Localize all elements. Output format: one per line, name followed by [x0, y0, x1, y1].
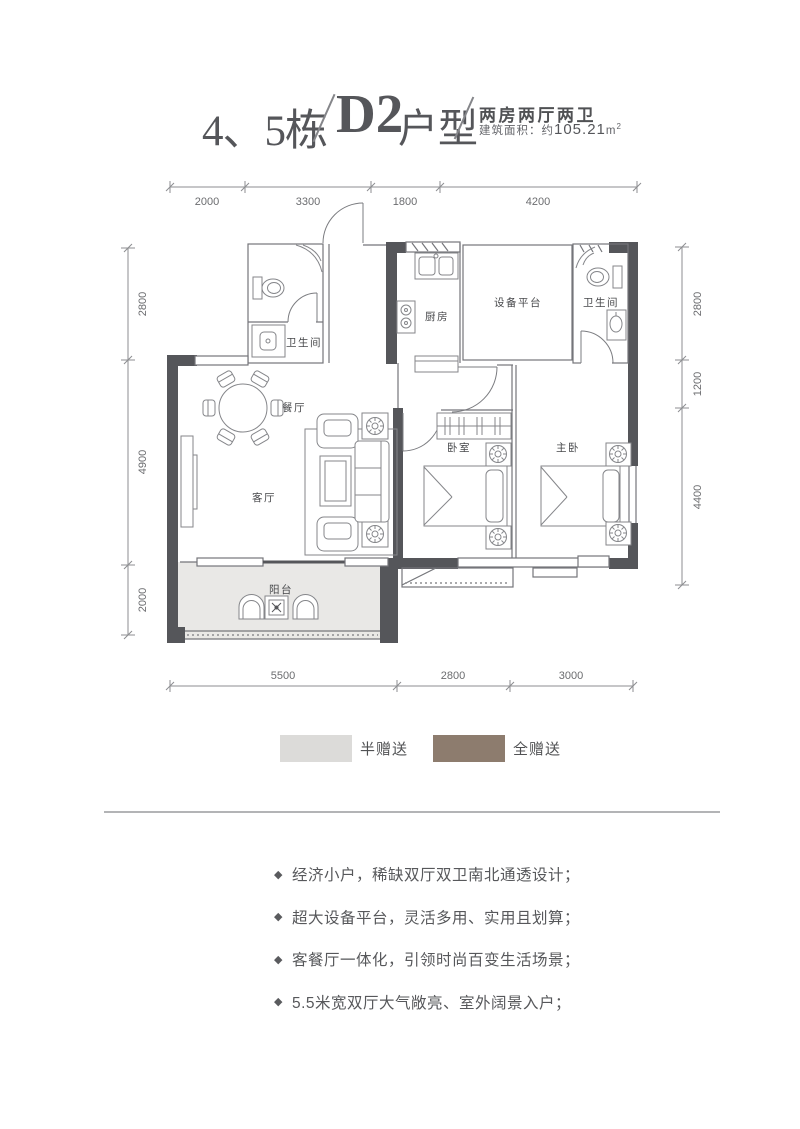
room-label-kitchen: 厨房 [425, 310, 449, 323]
diamond-bullet-icon: ◆ [274, 953, 283, 966]
area-line: 建筑面积：约105.21m2 [479, 121, 622, 138]
legend-label-full-gift: 全赠送 [513, 738, 561, 759]
room-labels: 卫生间 厨房 设备平台 卫生间 餐厅 客厅 卧室 主卧 阳台 [252, 296, 619, 596]
diamond-bullet-icon: ◆ [274, 995, 283, 1008]
ac-ledge [402, 568, 513, 587]
room-label-balcony: 阳台 [269, 583, 293, 596]
feature-text: 超大设备平台，灵活多用、实用且划算； [292, 906, 580, 928]
unit-type-suffix: 户型 [398, 96, 478, 154]
window [197, 558, 263, 566]
diamond-bullet-icon: ◆ [274, 868, 283, 881]
dim-label: 2800 [692, 292, 704, 316]
dining-set-icon [203, 370, 283, 446]
sofa-set-icon [305, 413, 397, 555]
dim-label: 2000 [195, 196, 219, 208]
dim-label: 3000 [559, 670, 583, 682]
floor-plan: 2000 3300 1800 4200 2800 4900 2000 [100, 165, 720, 710]
entry-door-arc [323, 203, 363, 243]
room-label-bath-left: 卫生间 [286, 336, 322, 349]
bath-left-door-arc [288, 293, 317, 322]
diamond-bullet-icon: ◆ [274, 910, 283, 923]
fridge-icon [415, 356, 458, 372]
dim-label: 2800 [137, 292, 149, 316]
hall-door-arc [452, 367, 497, 412]
dim-label: 2000 [137, 588, 149, 612]
area-value: 105.21 [554, 121, 606, 138]
dim-label: 3300 [296, 196, 320, 208]
window [195, 356, 248, 365]
vanity-sink-icon [607, 310, 626, 340]
balcony-chair-icon [239, 595, 264, 620]
dim-label: 5500 [271, 670, 295, 682]
dim-bottom: 5500 2800 3000 [166, 670, 637, 692]
floorplan-page: 4、5栋 D2 户型 两房两厅两卫 建筑面积：约105.21m2 2000 33… [0, 0, 800, 1129]
bedroom-door-arc [403, 413, 441, 451]
balcony-chair-icon [293, 595, 318, 620]
toilet-icon [587, 266, 622, 288]
bedroom-bed-icon [424, 443, 511, 549]
area-unit-sup: 2 [616, 122, 621, 131]
dim-label: 1200 [692, 372, 704, 396]
room-label-master: 主卧 [556, 441, 580, 454]
dim-label: 4400 [692, 485, 704, 509]
room-label-bedroom: 卧室 [447, 441, 471, 454]
feature-text: 客餐厅一体化，引领时尚百变生活场景； [292, 948, 580, 970]
dim-label: 4200 [526, 196, 550, 208]
legend-label-half-gift: 半赠送 [360, 738, 408, 759]
dim-label: 4900 [137, 450, 149, 474]
shower-icon [296, 245, 322, 272]
feature-item: ◆ 5.5米宽双厅大气敞亮、室外阔景入户； [274, 981, 580, 1024]
feature-item: ◆ 超大设备平台，灵活多用、实用且划算； [274, 896, 580, 939]
section-divider [104, 811, 720, 813]
room-label-platform: 设备平台 [494, 296, 542, 309]
stove-icon [397, 301, 415, 333]
feature-list: ◆ 经济小户，稀缺双厅双卫南北通透设计； ◆ 超大设备平台，灵活多用、实用且划算… [274, 853, 580, 1023]
unit-code: D2 [336, 82, 403, 145]
feature-item: ◆ 客餐厅一体化，引领时尚百变生活场景； [274, 938, 580, 981]
kitchen-sink-icon [415, 253, 458, 279]
toilet-icon [253, 277, 284, 299]
room-label-living: 客厅 [252, 491, 276, 504]
dim-right: 2800 1200 4400 [675, 243, 704, 589]
window-hatch-kitchen [406, 242, 460, 252]
right-wall-window [626, 466, 639, 523]
dim-label: 2800 [441, 670, 465, 682]
area-prefix: 建筑面积：约 [479, 125, 554, 137]
tv-stand-icon [181, 436, 197, 527]
balcony-furniture [239, 595, 318, 620]
window-sill [578, 556, 609, 567]
bath-right-fixtures [576, 247, 626, 340]
area-unit: m [606, 125, 617, 137]
dim-label: 1800 [393, 196, 417, 208]
dim-left: 2800 4900 2000 [121, 244, 149, 639]
legend: 半赠送 全赠送 [280, 735, 561, 762]
wardrobe-icon [437, 413, 511, 439]
vanity-sink-icon [252, 325, 285, 357]
master-bed-icon [541, 443, 631, 545]
window [345, 558, 388, 566]
balcony-table-icon [265, 596, 288, 619]
dim-top: 2000 3300 1800 4200 [166, 181, 641, 208]
room-label-bath-right: 卫生间 [583, 296, 619, 309]
feature-item: ◆ 经济小户，稀缺双厅双卫南北通透设计； [274, 853, 580, 896]
room-label-dining: 餐厅 [282, 401, 306, 414]
feature-text: 经济小户，稀缺双厅双卫南北通透设计； [292, 863, 580, 885]
legend-swatch-full-gift [433, 735, 505, 762]
feature-text: 5.5米宽双厅大气敞亮、室外阔景入户； [292, 991, 571, 1013]
building-title: 4、5栋 [202, 96, 327, 158]
legend-swatch-half-gift [280, 735, 352, 762]
